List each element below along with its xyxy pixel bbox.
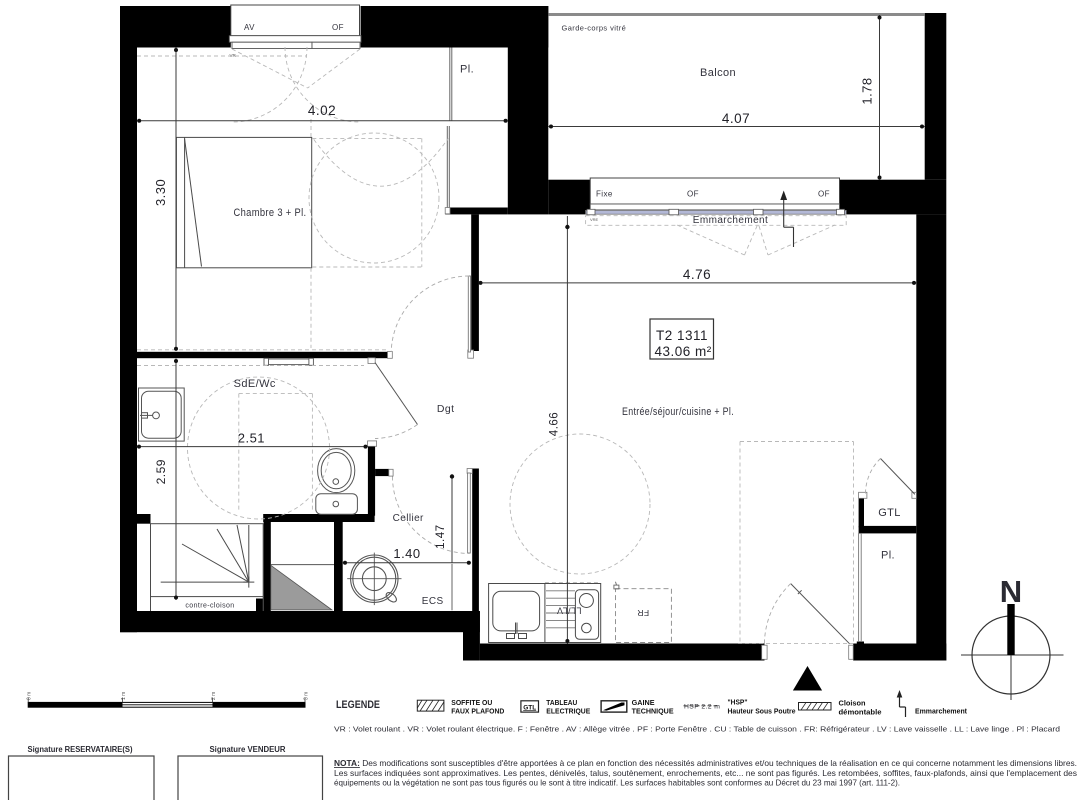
svg-text:Les surfaces indiquées sont ap: Les surfaces indiquées sont approximativ… — [334, 768, 1077, 778]
svg-text:Balcon: Balcon — [700, 67, 736, 79]
svg-text:T2 1311: T2 1311 — [656, 328, 708, 343]
svg-text:1.78: 1.78 — [860, 77, 875, 104]
svg-text:Emmarchement: Emmarchement — [693, 215, 768, 226]
svg-text:VR: VR — [230, 53, 237, 58]
svg-text:Pl.: Pl. — [460, 64, 474, 76]
svg-text:3 m: 3 m — [303, 692, 309, 700]
svg-text:1 m: 1 m — [121, 692, 127, 700]
svg-text:FAUX PLAFOND: FAUX PLAFOND — [451, 709, 504, 716]
svg-text:2.51: 2.51 — [238, 431, 265, 446]
svg-text:Signature RESERVATAIRE(S): Signature RESERVATAIRE(S) — [28, 744, 133, 754]
svg-text:LEGENDE: LEGENDE — [336, 699, 380, 711]
svg-text:0 m: 0 m — [27, 692, 33, 700]
svg-text:TECHNIQUE: TECHNIQUE — [632, 709, 674, 716]
svg-text:Chambre 3 + Pl.: Chambre 3 + Pl. — [234, 207, 307, 219]
svg-text:GAINE: GAINE — [632, 700, 655, 707]
svg-text:Signature VENDEUR: Signature VENDEUR — [210, 744, 287, 754]
svg-text:ECS: ECS — [422, 596, 444, 607]
svg-text:équipements ou la végétation n: équipements ou la végétation ne sont pas… — [334, 778, 900, 788]
svg-text:Garde-corps vitré: Garde-corps vitré — [562, 24, 627, 33]
svg-text:Hauteur Sous Poutre: Hauteur Sous Poutre — [728, 709, 796, 716]
svg-text:ELECTRIQUE: ELECTRIQUE — [546, 709, 590, 716]
svg-text:4.02: 4.02 — [308, 103, 336, 118]
svg-text:Entrée/séjour/cuisine + Pl.: Entrée/séjour/cuisine + Pl. — [622, 406, 734, 418]
svg-text:2.59: 2.59 — [154, 459, 168, 484]
svg-text:4.07: 4.07 — [722, 111, 750, 126]
svg-text:1.47: 1.47 — [435, 525, 447, 549]
svg-text:TABLEAU: TABLEAU — [546, 700, 577, 707]
svg-text:LL/LV: LL/LV — [557, 606, 582, 616]
svg-text:"HSP": "HSP" — [728, 700, 748, 707]
svg-text:démontable: démontable — [839, 710, 882, 717]
svg-text:Cloison: Cloison — [839, 701, 866, 708]
svg-text:SOFFITE OU: SOFFITE OU — [451, 700, 492, 707]
svg-text:contre-cloison: contre-cloison — [185, 603, 234, 610]
svg-text:43.06 m²: 43.06 m² — [655, 344, 712, 359]
svg-text:4.66: 4.66 — [549, 412, 561, 436]
svg-text:HSP 2.2 m: HSP 2.2 m — [684, 704, 720, 711]
svg-text:OF: OF — [818, 190, 830, 199]
svg-text:Cellier: Cellier — [393, 513, 424, 524]
svg-text:Pl.: Pl. — [881, 550, 895, 562]
svg-text:N: N — [1000, 574, 1022, 609]
svg-text:GTL: GTL — [523, 704, 536, 711]
svg-text:SdE/Wc: SdE/Wc — [234, 378, 276, 390]
svg-text:1.40: 1.40 — [393, 546, 420, 561]
svg-text:Emmarchement: Emmarchement — [915, 709, 968, 716]
svg-text:GTL: GTL — [878, 507, 901, 519]
svg-text:4.76: 4.76 — [683, 267, 711, 282]
svg-text:AV: AV — [244, 23, 255, 32]
svg-text:OF: OF — [332, 23, 344, 32]
svg-text:OF: OF — [687, 190, 699, 199]
svg-text:Fixe: Fixe — [596, 190, 613, 199]
svg-text:Dgt: Dgt — [437, 403, 455, 415]
svg-text:2 m: 2 m — [211, 692, 217, 700]
svg-text:VRE: VRE — [590, 217, 599, 222]
svg-text:FR: FR — [637, 608, 649, 618]
svg-text:NOTA: Des modifications sont s: NOTA: Des modifications sont susceptible… — [334, 758, 1077, 768]
svg-text:VR : Volet roulant . VR : Vole: VR : Volet roulant . VR : Volet roulant … — [334, 725, 1060, 734]
svg-text:3.30: 3.30 — [153, 179, 168, 206]
